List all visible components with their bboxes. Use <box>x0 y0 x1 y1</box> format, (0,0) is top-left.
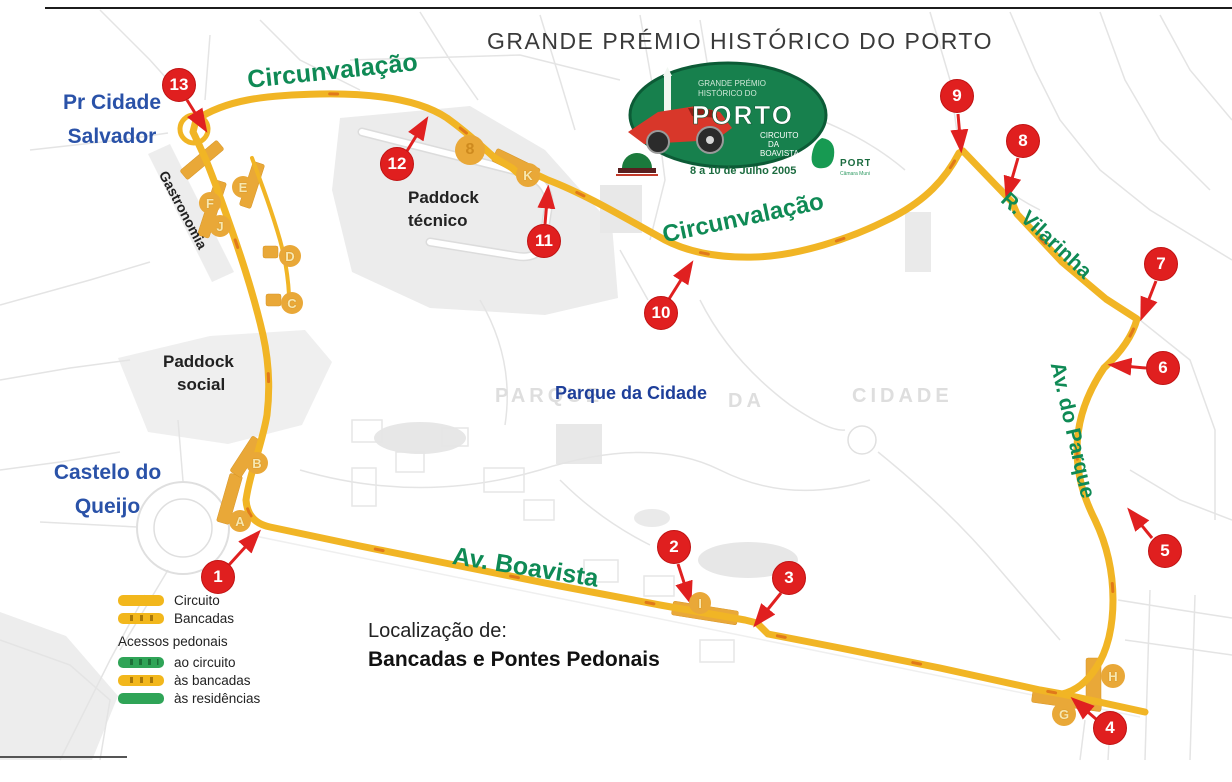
arrow-2 <box>678 564 690 601</box>
stand-marker-d: D <box>279 245 301 267</box>
porto-circuit-map: GRANDE PRÉMIO HISTÓRICO DO PORTO GRANDE … <box>0 0 1232 782</box>
stand-marker-a: A <box>229 510 251 532</box>
stand-marker-c: C <box>281 292 303 314</box>
legend-header-acessos: Acessos pedonais <box>118 630 260 652</box>
logo-line2: HISTÓRICO DO <box>698 89 757 98</box>
stand-marker-h: H <box>1101 664 1125 688</box>
bg-label-cidade: CIDADE <box>852 385 953 408</box>
legend-row-ao-circuito: ao circuito <box>118 654 260 671</box>
arrow-6 <box>1112 365 1146 368</box>
legend-ao-circuito-swatch <box>118 657 164 668</box>
bridge-marker-10: 10 <box>644 296 678 330</box>
logo-line1: GRANDE PRÉMIO <box>698 79 766 88</box>
legend-bancadas-swatch <box>118 613 164 624</box>
bridge-marker-8: 8 <box>1006 124 1040 158</box>
legend-as-bancadas-swatch <box>118 675 164 686</box>
label-paddock-tecnico: Paddock técnico <box>408 186 479 232</box>
legend-row-circuito: Circuito <box>118 592 260 609</box>
logo-date: 8 a 10 de Julho 2005 <box>690 165 796 177</box>
arrow-7 <box>1142 281 1156 317</box>
legend-circuito-swatch <box>118 595 164 606</box>
label-parque-da-cidade: Parque da Cidade <box>555 383 707 404</box>
stand-marker-f: F <box>199 192 221 214</box>
bridge-marker-4: 4 <box>1093 711 1127 745</box>
pit-lane <box>252 158 289 295</box>
bridge-marker-6: 6 <box>1146 351 1180 385</box>
bridge-marker-9: 9 <box>940 79 974 113</box>
arrow-9 <box>958 114 961 149</box>
bridge-marker-13: 13 <box>162 68 196 102</box>
bg-label-da: DA <box>728 390 765 413</box>
arrow-5 <box>1130 511 1152 538</box>
logo-circuit3: BOAVISTA <box>760 149 799 158</box>
logo-club-mark-icon <box>622 153 652 168</box>
legend-row-as-bancadas: às bancadas <box>118 672 260 689</box>
legend: Circuito Bancadas Acessos pedonais ao ci… <box>118 592 260 708</box>
logo-city-sub: Câmara Municipal <box>840 171 870 177</box>
logo-circuit1: CIRCUITO <box>760 131 799 140</box>
logo-name: PORTO <box>692 100 794 130</box>
logo-city: PORTO <box>840 158 870 169</box>
caption-bancadas-pontes: Bancadas e Pontes Pedonais <box>368 648 660 672</box>
arrow-10 <box>669 264 691 299</box>
bridge-marker-2: 2 <box>657 530 691 564</box>
bridge-marker-11: 11 <box>527 224 561 258</box>
bridge-marker-5: 5 <box>1148 534 1182 568</box>
porto-city-mark-icon <box>812 138 835 168</box>
label-castelo-do-queijo: Castelo do Queijo <box>25 456 190 524</box>
bridge-marker-12: 12 <box>380 147 414 181</box>
stand-marker-i: I <box>689 592 711 614</box>
legend-row-as-residencias: às residências <box>118 690 260 707</box>
bridge-marker-7: 7 <box>1144 247 1178 281</box>
legend-as-residencias-swatch <box>118 693 164 704</box>
caption-localizacao: Localização de: <box>368 620 507 643</box>
stand-marker-e: E <box>232 176 254 198</box>
gold-marker-8: 8 <box>455 135 485 165</box>
logo-circuit2: DA <box>768 140 780 149</box>
arrow-1 <box>228 533 258 566</box>
event-logo: GRANDE PRÉMIO HISTÓRICO DO PORTO CIRCUIT… <box>600 60 870 182</box>
page-title: GRANDE PRÉMIO HISTÓRICO DO PORTO <box>440 28 1040 55</box>
label-paddock-social: Paddock social <box>163 350 234 396</box>
stand-marker-g: G <box>1052 702 1076 726</box>
arrow-3 <box>756 593 781 624</box>
legend-row-bancadas: Bancadas <box>118 610 260 627</box>
top-rule <box>45 7 1232 9</box>
bridge-marker-3: 3 <box>772 561 806 595</box>
stand-marker-j: J <box>209 215 231 237</box>
bottom-left-rule <box>0 756 127 758</box>
stand-marker-k: K <box>516 163 540 187</box>
stand-marker-b: B <box>246 452 268 474</box>
bridge-marker-1: 1 <box>201 560 235 594</box>
